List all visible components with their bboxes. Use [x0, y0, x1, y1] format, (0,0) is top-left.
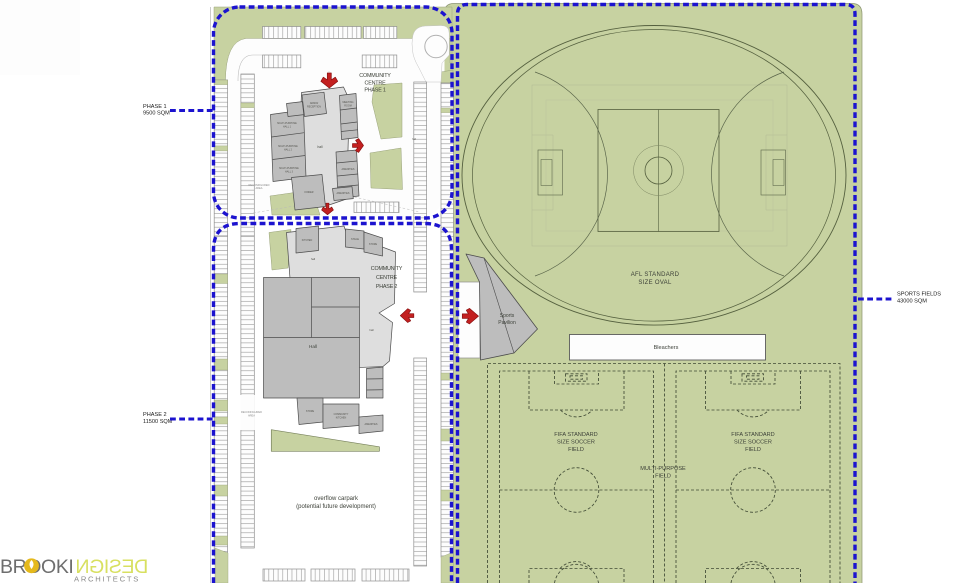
svg-text:Hall: Hall — [309, 344, 317, 349]
svg-text:PHASE 1: PHASE 1 — [364, 88, 386, 94]
svg-text:ROOM: ROOM — [344, 104, 351, 107]
svg-text:RECEPTION: RECEPTION — [307, 105, 321, 108]
svg-text:SIZE SOCCER: SIZE SOCCER — [557, 440, 595, 446]
svg-text:PHASE 1: PHASE 1 — [143, 104, 167, 110]
svg-text:43000 SQM: 43000 SQM — [897, 299, 927, 305]
svg-text:STORE: STORE — [306, 410, 315, 413]
svg-text:PHASE 2: PHASE 2 — [143, 412, 167, 418]
svg-text:COMMUNITY: COMMUNITY — [359, 73, 391, 79]
svg-text:hall: hall — [369, 328, 374, 332]
svg-text:PHASE 2: PHASE 2 — [376, 284, 398, 290]
svg-text:Sports: Sports — [500, 313, 515, 319]
svg-text:RECONFIGURED: RECONFIGURED — [248, 183, 269, 187]
svg-text:AREA: AREA — [248, 414, 255, 418]
svg-text:FIELD: FIELD — [568, 447, 584, 453]
svg-text:AMENITIES: AMENITIES — [337, 192, 350, 195]
svg-text:FIELD: FIELD — [745, 447, 761, 453]
svg-text:KINDER: KINDER — [304, 191, 313, 194]
svg-text:AMENITIES: AMENITIES — [342, 168, 355, 171]
svg-text:FIELD: FIELD — [655, 474, 671, 480]
svg-text:Pavilion: Pavilion — [498, 320, 516, 326]
svg-text:HALL 1: HALL 1 — [283, 125, 292, 128]
svg-text:FIFA STANDARD: FIFA STANDARD — [554, 432, 597, 438]
svg-text:hall: hall — [412, 138, 416, 141]
svg-text:Bleachers: Bleachers — [654, 345, 679, 351]
svg-text:MULTI-PURPOSE: MULTI-PURPOSE — [640, 466, 686, 472]
svg-text:KITCHEN: KITCHEN — [336, 416, 347, 419]
svg-text:SPORTS FIELDS: SPORTS FIELDS — [897, 292, 941, 298]
svg-text:9500 SQM: 9500 SQM — [143, 111, 170, 117]
svg-text:ARCHITECTS: ARCHITECTS — [74, 575, 140, 583]
svg-text:AFL STANDARD: AFL STANDARD — [631, 272, 680, 278]
svg-text:overflow carpark: overflow carpark — [314, 496, 359, 502]
svg-text:HALL 2: HALL 2 — [284, 148, 293, 151]
svg-text:STAGE: STAGE — [351, 238, 359, 241]
svg-text:FIFA STANDARD: FIFA STANDARD — [731, 432, 774, 438]
svg-text:11500 SQM: 11500 SQM — [143, 419, 173, 425]
svg-text:AMENITIES: AMENITIES — [365, 423, 378, 426]
svg-text:hall: hall — [318, 145, 323, 149]
svg-text:CENTRE: CENTRE — [365, 81, 387, 87]
svg-text:RECONFIGURED: RECONFIGURED — [241, 410, 262, 414]
svg-text:AREA: AREA — [255, 186, 262, 190]
svg-text:KITCHEN: KITCHEN — [302, 239, 313, 242]
svg-text:HALL 3: HALL 3 — [285, 170, 294, 173]
svg-text:COMMUNITY: COMMUNITY — [371, 266, 403, 272]
svg-text:CENTRE: CENTRE — [376, 275, 398, 281]
svg-text:hall: hall — [311, 257, 316, 261]
svg-text:(potential future development): (potential future development) — [296, 504, 376, 510]
svg-text:SIZE SOCCER: SIZE SOCCER — [734, 440, 772, 446]
svg-text:STORE: STORE — [369, 243, 378, 246]
svg-text:SIZE OVAL: SIZE OVAL — [638, 280, 672, 286]
